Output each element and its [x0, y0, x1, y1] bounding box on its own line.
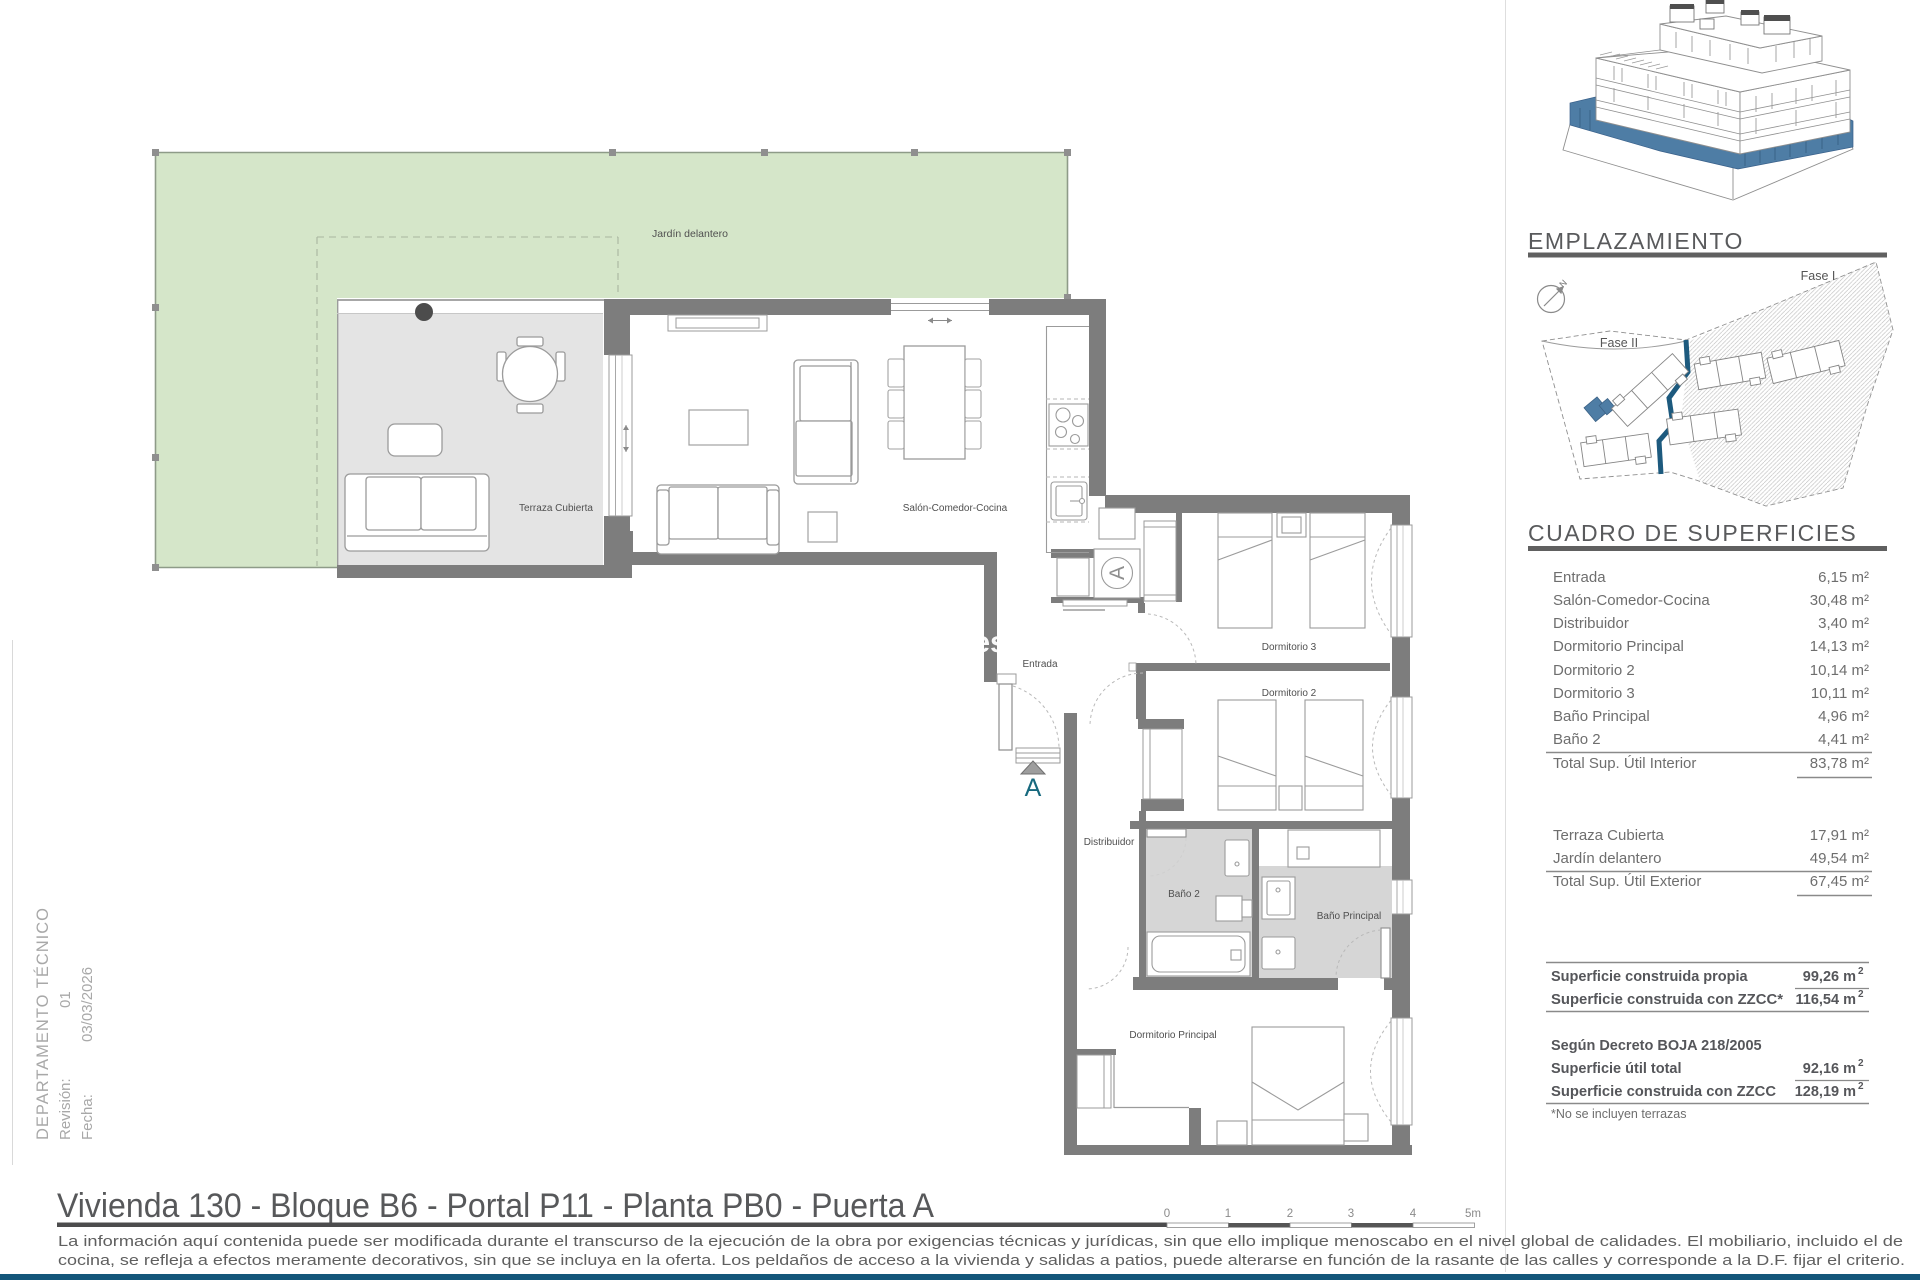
svg-text:Dormitorio Principal: Dormitorio Principal	[1553, 638, 1684, 655]
svg-text:DEPARTAMENTO TÉCNICO: DEPARTAMENTO TÉCNICO	[33, 907, 52, 1140]
svg-text:Baño 2: Baño 2	[1553, 731, 1601, 748]
svg-text:2: 2	[1858, 1058, 1864, 1069]
svg-text:A: A	[1025, 774, 1042, 802]
svg-text:Salón-Comedor-Cocina: Salón-Comedor-Cocina	[903, 503, 1008, 514]
svg-text:Terraza Cubierta: Terraza Cubierta	[1553, 827, 1665, 844]
svg-text:Distribuidor: Distribuidor	[1553, 615, 1629, 632]
svg-text:30,48 m²: 30,48 m²	[1810, 592, 1869, 609]
svg-text:Total Sup. Útil Interior: Total Sup. Útil Interior	[1553, 755, 1696, 772]
svg-text:Fase II: Fase II	[1600, 336, 1638, 350]
svg-text:Superficie útil total: Superficie útil total	[1551, 1061, 1682, 1077]
svg-text:A: A	[1106, 566, 1129, 580]
svg-text:5m: 5m	[1465, 1208, 1481, 1220]
svg-text:Entrada: Entrada	[1553, 569, 1606, 586]
svg-text:Salón-Comedor-Cocina: Salón-Comedor-Cocina	[1553, 592, 1710, 609]
svg-text:0: 0	[1164, 1208, 1170, 1220]
svg-text:Dormitorio 3: Dormitorio 3	[1262, 642, 1317, 653]
svg-text:Jardín delantero: Jardín delantero	[1553, 850, 1661, 867]
svg-text:Baño Principal: Baño Principal	[1553, 708, 1650, 725]
svg-text:4: 4	[1410, 1208, 1417, 1220]
svg-text:67,45 m²: 67,45 m²	[1810, 873, 1869, 890]
svg-text:EMPLAZAMIENTO: EMPLAZAMIENTO	[1528, 228, 1744, 254]
svg-text:1: 1	[1225, 1208, 1231, 1220]
svg-text:128,19 m: 128,19 m	[1795, 1084, 1856, 1100]
svg-text:*No se incluyen terrazas: *No se incluyen terrazas	[1551, 1107, 1686, 1121]
svg-text:Entrada: Entrada	[1022, 659, 1057, 670]
svg-text:Dormitorio 3: Dormitorio 3	[1553, 685, 1635, 702]
svg-text:Baño 2: Baño 2	[1168, 889, 1200, 900]
svg-text:116,54 m: 116,54 m	[1796, 992, 1856, 1008]
svg-text:14,13 m²: 14,13 m²	[1810, 638, 1869, 655]
svg-text:Baño Principal: Baño Principal	[1317, 911, 1381, 922]
svg-text:2: 2	[1287, 1208, 1293, 1220]
svg-text:Dormitorio 2: Dormitorio 2	[1553, 662, 1635, 679]
svg-text:Dormitorio 2: Dormitorio 2	[1262, 688, 1317, 699]
svg-text:01: 01	[57, 991, 74, 1008]
svg-text:3: 3	[1348, 1208, 1354, 1220]
svg-text:Según Decreto BOJA 218/2005: Según Decreto BOJA 218/2005	[1551, 1038, 1762, 1054]
svg-text:83,78 m²: 83,78 m²	[1810, 755, 1869, 772]
svg-text:La información aquí contenida: La información aquí contenida puede ser …	[58, 1234, 1903, 1250]
svg-text:es: es	[973, 626, 1006, 659]
svg-text:Terraza Cubierta: Terraza Cubierta	[519, 503, 593, 514]
svg-text:Vivienda 130 - Bloque B6 - Por: Vivienda 130 - Bloque B6 - Portal P11 - …	[57, 1187, 934, 1225]
svg-text:2: 2	[1858, 1081, 1864, 1092]
svg-text:Jardín delantero: Jardín delantero	[652, 228, 728, 240]
svg-text:4,96 m²: 4,96 m²	[1818, 708, 1869, 725]
svg-text:10,11 m²: 10,11 m²	[1811, 685, 1869, 702]
svg-text:6,15 m²: 6,15 m²	[1818, 569, 1869, 586]
svg-text:Dormitorio Principal: Dormitorio Principal	[1129, 1030, 1216, 1041]
svg-text:cocina, se refleja a efectos m: cocina, se refleja a efectos meramente d…	[58, 1253, 1905, 1269]
svg-text:Superficie construida con ZZCC: Superficie construida con ZZCC*	[1551, 992, 1783, 1008]
svg-text:Fecha:: Fecha:	[79, 1094, 96, 1140]
svg-text:Superficie construida propia: Superficie construida propia	[1551, 969, 1749, 985]
svg-text:4,41 m²: 4,41 m²	[1818, 731, 1869, 748]
svg-text:CUADRO DE SUPERFICIES: CUADRO DE SUPERFICIES	[1528, 520, 1857, 546]
svg-text:99,26 m: 99,26 m	[1803, 969, 1856, 985]
svg-text:10,14 m²: 10,14 m²	[1810, 662, 1869, 679]
svg-text:17,91 m²: 17,91 m²	[1810, 827, 1869, 844]
svg-text:2: 2	[1858, 989, 1864, 1000]
svg-text:Revisión:: Revisión:	[57, 1078, 74, 1140]
svg-text:Distribuidor: Distribuidor	[1084, 837, 1135, 848]
svg-text:49,54 m²: 49,54 m²	[1810, 850, 1869, 867]
svg-text:Total Sup. Útil Exterior: Total Sup. Útil Exterior	[1553, 873, 1701, 890]
svg-text:Superficie construida con ZZCC: Superficie construida con ZZCC	[1551, 1084, 1777, 1100]
svg-text:3,40 m²: 3,40 m²	[1818, 615, 1869, 632]
svg-text:2: 2	[1858, 966, 1864, 977]
svg-text:92,16 m: 92,16 m	[1803, 1061, 1856, 1077]
svg-text:03/03/2026: 03/03/2026	[79, 967, 96, 1042]
svg-text:Fase I: Fase I	[1801, 269, 1836, 283]
